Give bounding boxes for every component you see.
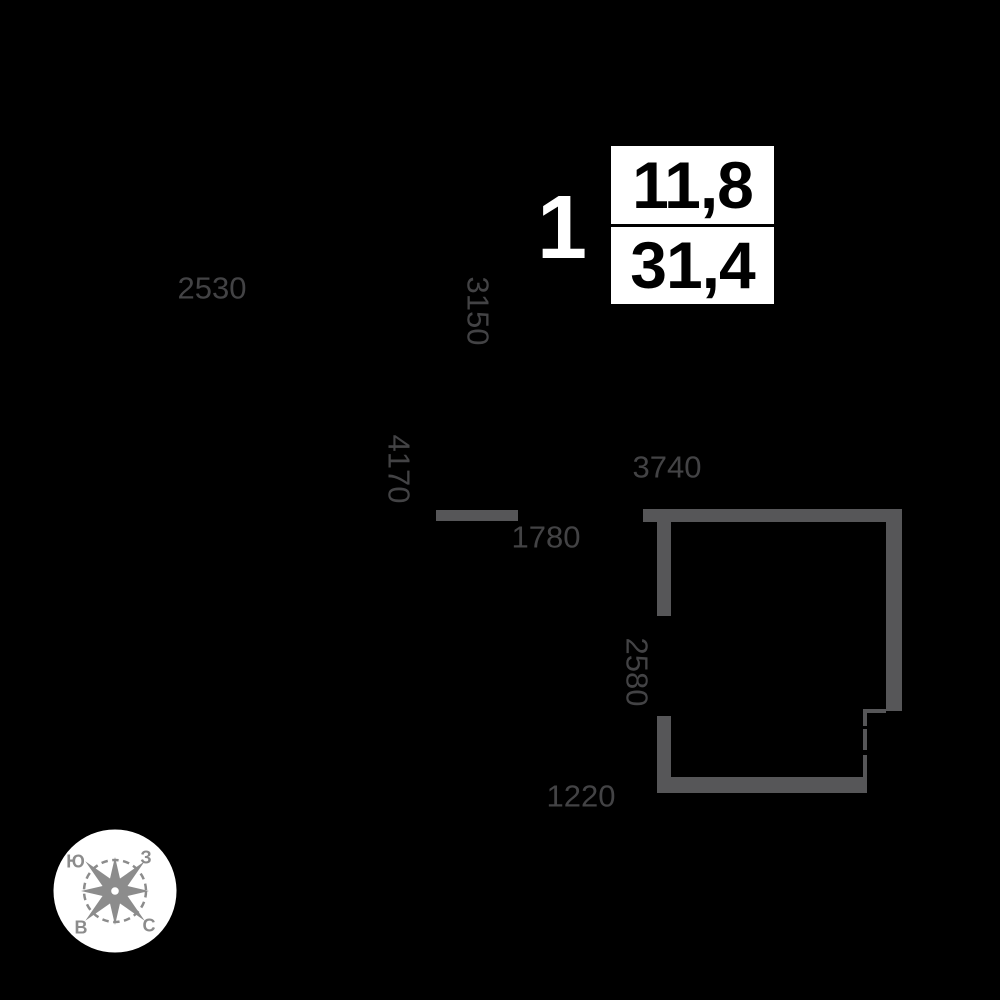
- wall-bottom: [657, 777, 867, 793]
- wall-left-upper: [657, 522, 671, 616]
- compass-rose-icon: [81, 857, 149, 925]
- wall-top: [643, 509, 902, 522]
- window-wall-segment-1: [863, 713, 867, 726]
- compass: Ю З В С: [53, 829, 177, 953]
- compass-label-west: З: [140, 848, 151, 868]
- dimension-label-top-height: 3150: [463, 277, 494, 346]
- unit-rooms-count: 1: [537, 183, 587, 273]
- wall-stub-left: [436, 510, 518, 521]
- wall-left-lower: [657, 716, 671, 777]
- compass-label-north: С: [143, 916, 156, 936]
- dimension-label-top-width: 2530: [178, 273, 247, 304]
- floor-plan-canvas: 2530 3150 4170 3740 1780 2580 1220 1 11,…: [0, 0, 1000, 1000]
- window-wall-segment-3: [863, 755, 867, 777]
- dimension-label-room-height: 2580: [622, 638, 653, 707]
- dimension-label-bottom-width: 1220: [547, 781, 616, 812]
- wall-right: [886, 509, 902, 711]
- living-area-value: 11,8: [611, 146, 774, 224]
- window-wall-segment-2: [863, 729, 867, 750]
- unit-area-box: 11,8 31,4: [611, 146, 774, 304]
- compass-label-south: Ю: [66, 852, 85, 872]
- compass-label-east: В: [75, 918, 88, 938]
- dimension-label-mid-height: 4170: [384, 435, 415, 504]
- dimension-label-room-width: 3740: [633, 452, 702, 483]
- total-area-value: 31,4: [611, 227, 774, 305]
- dimension-label-opening-width: 1780: [512, 522, 581, 553]
